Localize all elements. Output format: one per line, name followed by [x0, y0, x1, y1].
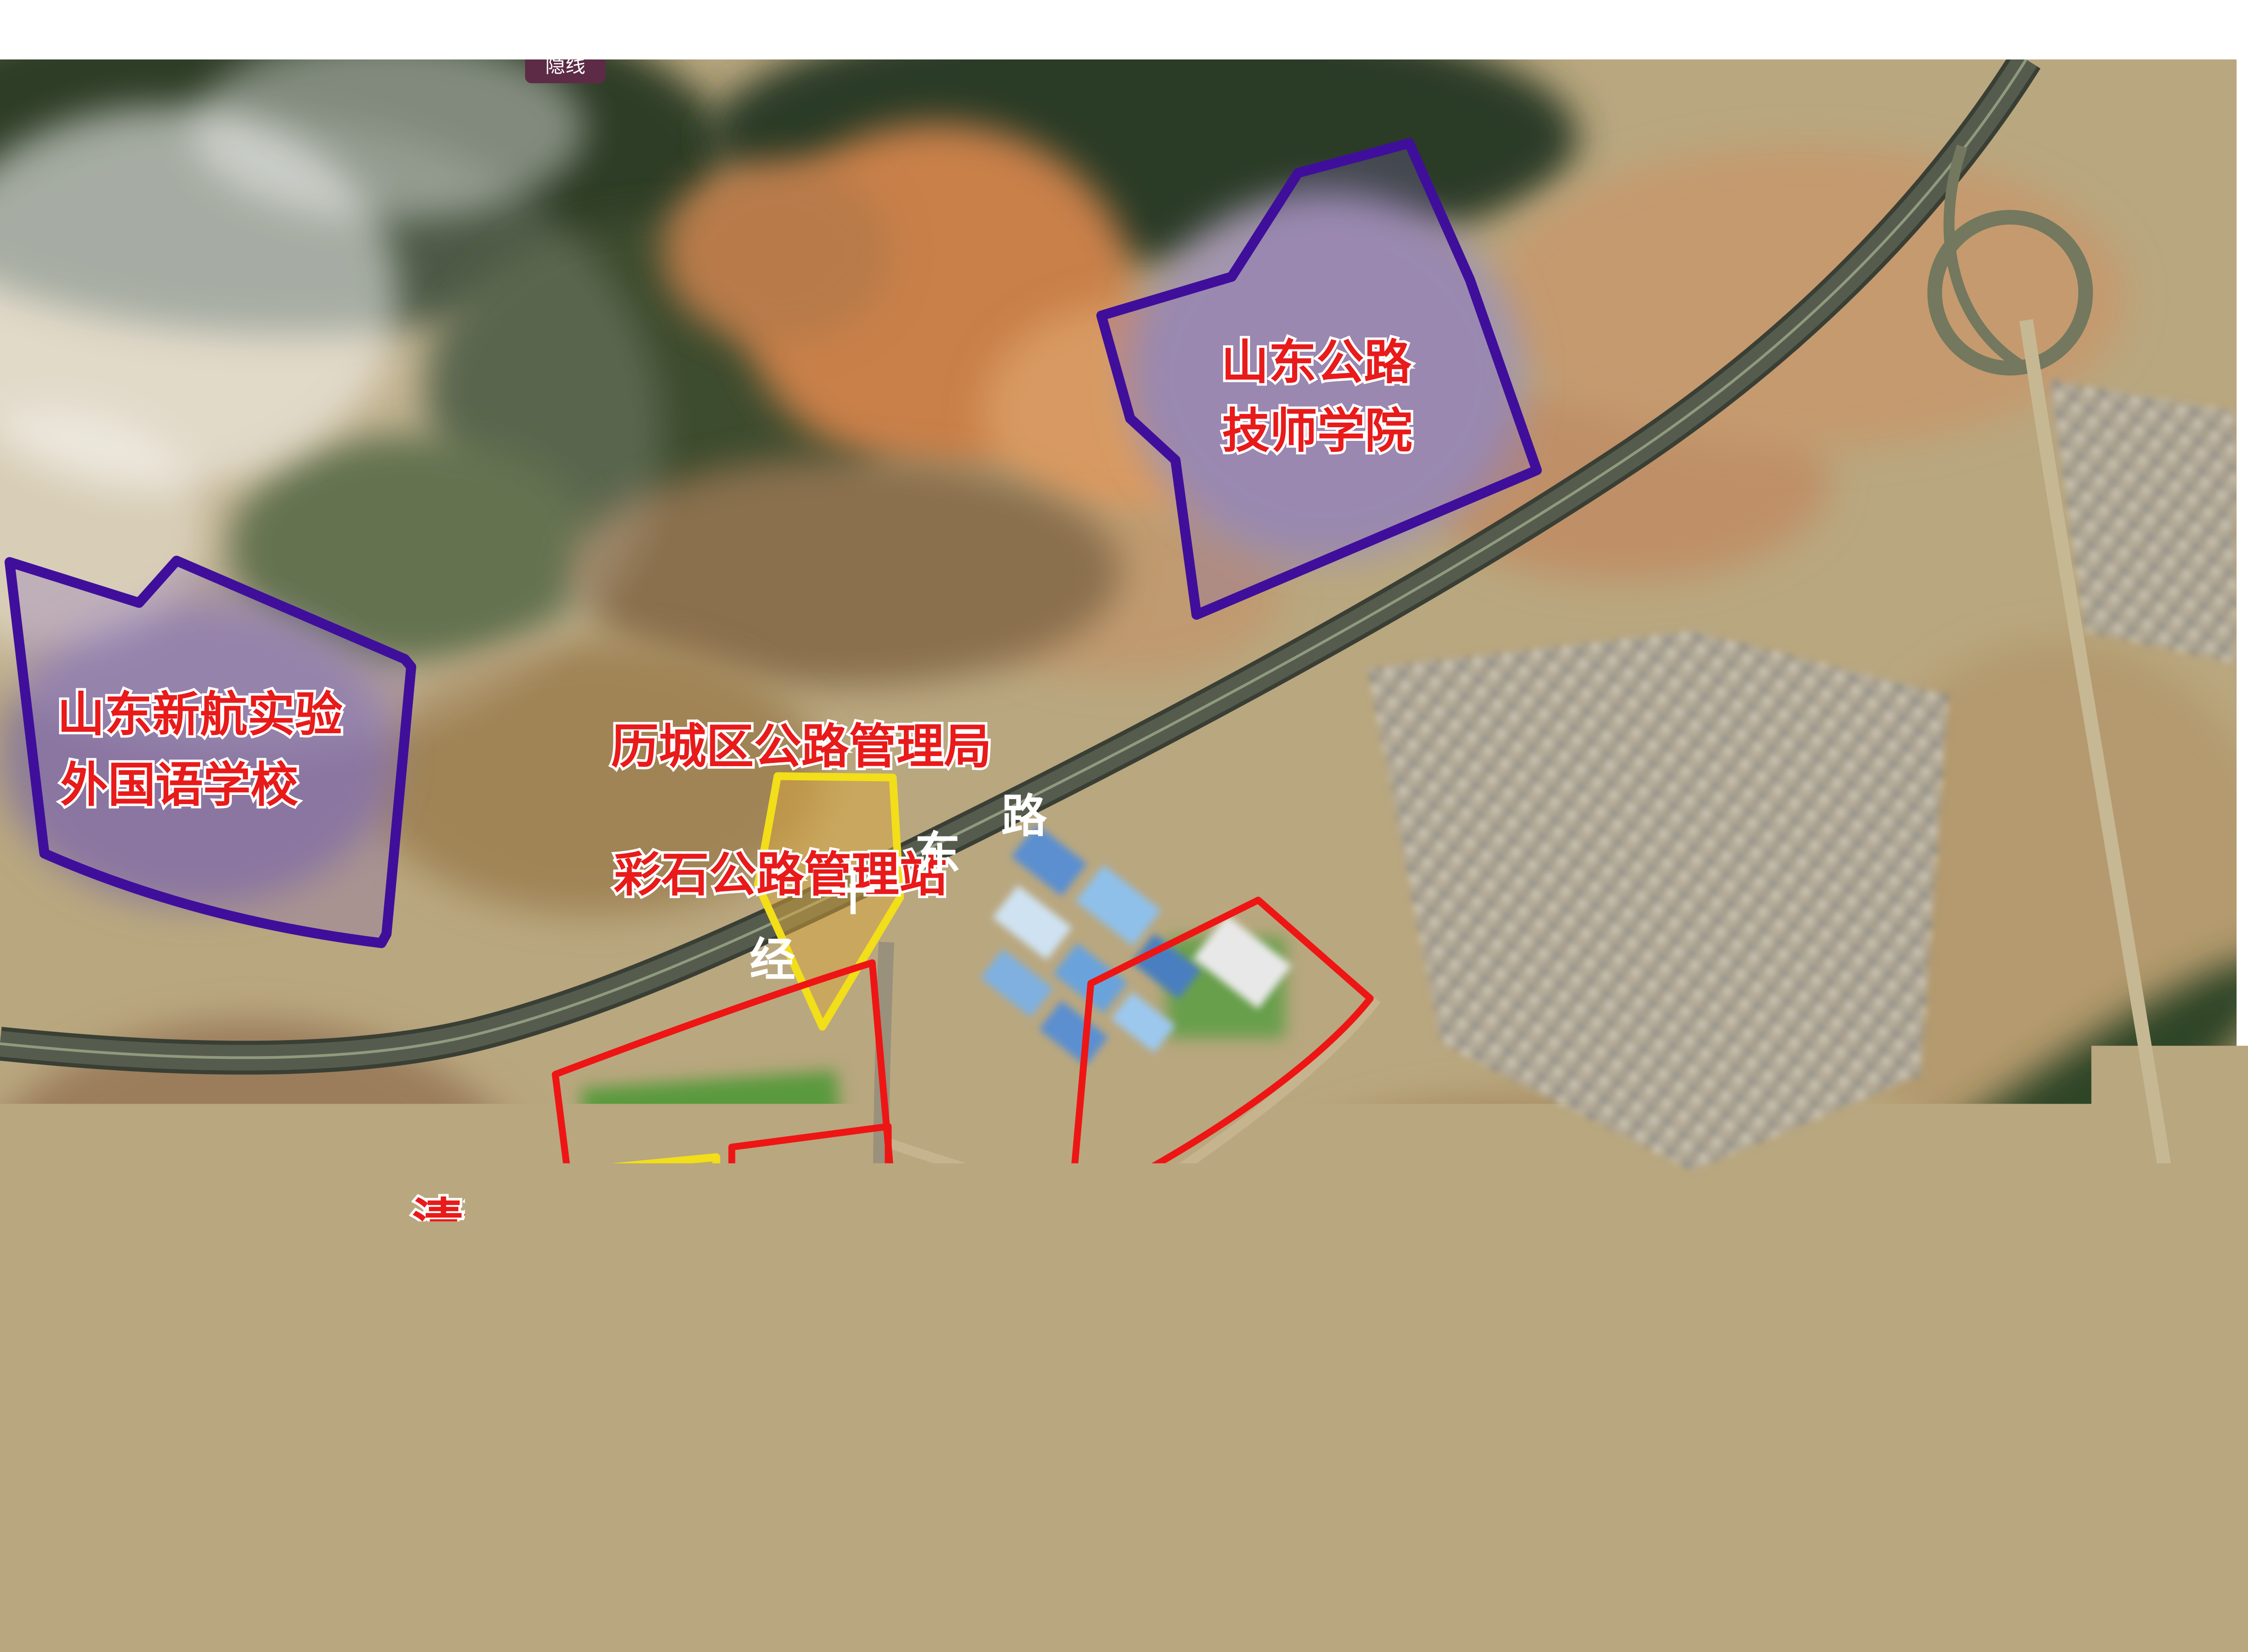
label-station-line2: 彩石公路管理站	[614, 848, 947, 901]
label-college-line2: 技师学院	[1222, 405, 1412, 458]
road-char: 彩	[881, 1226, 927, 1277]
label-xinhang-line1: 山东新航实验	[57, 688, 343, 741]
label-station-line1: 历城区公路管理局	[611, 720, 992, 773]
road-char: 东	[915, 828, 960, 880]
label-medical-platform: 医疗器械创新和监管服务大平台	[102, 1332, 723, 1382]
map-annotation-screenshot: 山东新航实验 外国语学校 山东公路 技师学院 历城区公路管理局 彩石公路管理站 …	[0, 0, 2248, 1652]
road-char: 十	[830, 869, 876, 920]
label-food-platform: 食品药品创新和监管服务大平台	[1136, 1332, 1757, 1382]
road-char: 路	[881, 1380, 928, 1432]
satellite-map-canvas[interactable]: 山东新航实验 外国语学校 山东公路 技师学院 历城区公路管理局 彩石公路管理站 …	[0, 0, 2248, 1652]
label-tomb: 清河太夫人墓	[412, 1194, 720, 1251]
hide-lines-button[interactable]: 隐线	[525, 51, 606, 83]
road-char: 经	[750, 934, 795, 986]
road-char: 龙	[881, 1304, 927, 1355]
scale-bar-label: 200米	[86, 1572, 145, 1596]
label-xinhang-line2: 外国语学校	[60, 759, 298, 812]
hide-lines-button-label: 隐线	[545, 54, 585, 77]
road-name-cailong: 彩 龙 路	[881, 1226, 928, 1432]
label-college-line1: 山东公路	[1221, 336, 1412, 389]
map-logo-icon	[5, 1591, 26, 1616]
road-char: 路	[1001, 791, 1047, 842]
